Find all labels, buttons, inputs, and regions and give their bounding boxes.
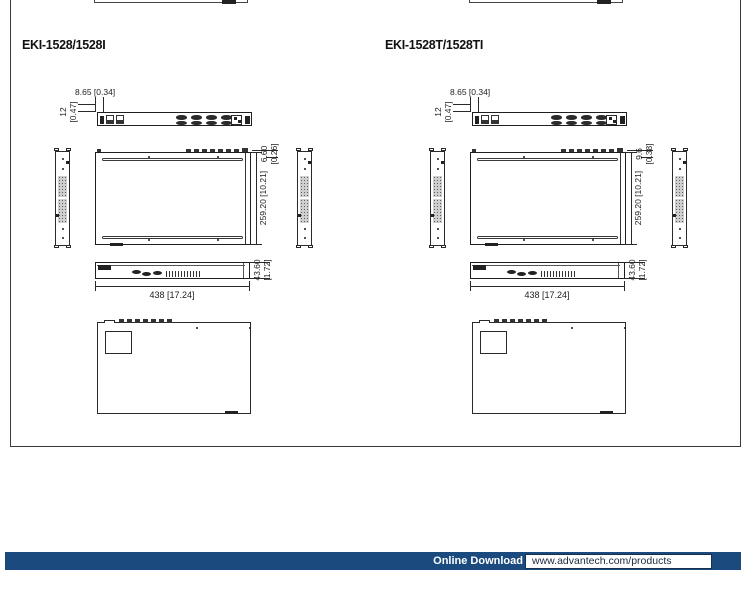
vent-grille [58, 199, 67, 223]
edge-tab [234, 149, 239, 152]
dim-line-depth [256, 152, 257, 245]
dim-lip-label: 6.60[0.26] [260, 140, 280, 168]
serial-port [176, 121, 187, 126]
label-area [480, 331, 507, 354]
edge-tab [534, 319, 539, 323]
bottom-edge-connector [485, 243, 498, 246]
vent-slot [102, 158, 243, 161]
vent-slot [477, 236, 618, 239]
vent-grille [675, 199, 684, 223]
rj45-port [491, 115, 499, 124]
edge-tab [226, 149, 231, 152]
edge-tab [585, 149, 590, 152]
screw-hole [62, 168, 64, 170]
connector-shape [132, 270, 141, 274]
rj45-port [481, 115, 489, 124]
screw-hole [679, 237, 681, 239]
edge-tab [494, 319, 499, 323]
bezel-line [97, 265, 245, 266]
connector-shape [153, 271, 162, 275]
serial-port [176, 115, 187, 120]
bottom-view [97, 322, 251, 414]
mounting-foot [308, 148, 313, 151]
side-tab [441, 161, 444, 164]
edge-tab [617, 148, 623, 152]
screw-hole [523, 156, 525, 158]
terminal-pin [234, 117, 237, 120]
side-tab [673, 214, 676, 217]
edge-tab [167, 319, 172, 323]
model-title: EKI-1528/1528I [22, 38, 105, 52]
dim-height-label: 43.60[1.72] [253, 255, 273, 285]
screw-hole [217, 239, 219, 241]
bottom-edge-connector [225, 411, 238, 414]
screw-hole [304, 237, 306, 239]
edge-tab [518, 319, 523, 323]
edge-tab [127, 319, 132, 323]
brand-logo-block [98, 265, 111, 270]
mounting-foot [429, 148, 434, 151]
terminal-pin [609, 117, 612, 120]
edge-tab [601, 149, 606, 152]
download-url: www.advantech.com/products [526, 555, 711, 568]
edge-tab [242, 148, 248, 152]
label-area [105, 331, 132, 354]
dimension-panel: EKI-1528/1528I 8.65 [0.34] 12[0.47] [22, 0, 362, 445]
serial-port [206, 121, 217, 126]
side-tab [683, 161, 686, 164]
terminal-pin [613, 120, 616, 123]
dim-offset-label: 8.65 [0.34] [450, 87, 490, 97]
screw-hole [679, 168, 681, 170]
top-view [470, 152, 626, 245]
screw-hole [148, 239, 150, 241]
edge-tab [577, 149, 582, 152]
terminal-block [231, 115, 242, 125]
vent-grille [58, 176, 67, 197]
dim-offset-label: 8.65 [0.34] [75, 87, 115, 97]
edge-tab [143, 319, 148, 323]
vent-slot [102, 236, 243, 239]
edge-notch [479, 320, 490, 323]
screw-hole [196, 327, 198, 329]
screw-hole [304, 158, 306, 160]
dim-width-label: 438 [17.24] [117, 290, 227, 300]
screw-hole [437, 158, 439, 160]
bottom-edge-connector [600, 411, 613, 414]
terminal-block [606, 115, 617, 125]
screw-hole [304, 168, 306, 170]
rj45-port [106, 115, 114, 124]
rear-edge-line [245, 153, 246, 244]
screw-hole [62, 237, 64, 239]
serial-port [581, 121, 592, 126]
edge-tab [502, 319, 507, 323]
dim-tick [78, 104, 96, 105]
dim-line-width [470, 286, 625, 287]
terminal-pin [238, 120, 241, 123]
screw-hole [624, 327, 626, 329]
edge-tab [526, 319, 531, 323]
side-tab [308, 161, 311, 164]
edge-tab [159, 319, 164, 323]
serial-port [551, 121, 562, 126]
serial-port [206, 115, 217, 120]
edge-notch [104, 320, 115, 323]
mounting-foot [54, 148, 59, 151]
rear-edge-line [620, 153, 621, 244]
edge-tab [194, 149, 199, 152]
edge-tab [569, 149, 574, 152]
vent-grille [300, 176, 309, 197]
mounting-foot [296, 245, 301, 248]
dim-line-width [95, 286, 250, 287]
edge-tab [593, 149, 598, 152]
dim-height-label: 43.60[1.72] [628, 255, 648, 285]
led-array [166, 271, 200, 277]
connector-shape [507, 270, 516, 274]
vent-grille [433, 199, 442, 223]
edge-tab [510, 319, 515, 323]
serial-port [566, 121, 577, 126]
side-view-right [297, 151, 312, 246]
mounting-foot [441, 148, 446, 151]
dim-width-label: 438 [17.24] [492, 290, 602, 300]
edge-tab [561, 149, 566, 152]
screw-hole [62, 158, 64, 160]
screw-hole [304, 228, 306, 230]
edge-tab [202, 149, 207, 152]
edge-tab [151, 319, 156, 323]
mounting-foot [441, 245, 446, 248]
cropped-drawing-connector [597, 0, 611, 4]
dim-tick [453, 104, 471, 105]
mounting-foot [54, 245, 59, 248]
bottom-view [472, 322, 626, 414]
edge-tab [135, 319, 140, 323]
screw-hole [217, 156, 219, 158]
screw-hole [249, 327, 251, 329]
dim-depth-label: 259.20 [10.21] [633, 158, 645, 238]
screw-hole [523, 239, 525, 241]
edge-tab [97, 149, 101, 152]
screw-hole [437, 168, 439, 170]
serial-port [551, 115, 562, 120]
serial-port [566, 115, 577, 120]
screw-hole [679, 158, 681, 160]
screw-hole [62, 228, 64, 230]
bezel-line [618, 263, 619, 278]
brand-logo-block [473, 265, 486, 270]
power-connector [100, 116, 104, 124]
serial-port [581, 115, 592, 120]
connector-shape [517, 272, 526, 276]
screw-hole [437, 228, 439, 230]
side-view-left [55, 151, 70, 246]
serial-port [191, 121, 202, 126]
led-array [541, 271, 575, 277]
edge-tab [186, 149, 191, 152]
screw-hole [592, 156, 594, 158]
dim-extension-line [478, 97, 479, 112]
front-view [95, 262, 250, 279]
serial-port [191, 115, 202, 120]
front-view [470, 262, 625, 279]
dim-tick [453, 111, 471, 112]
mounting-foot [683, 148, 688, 151]
connector-shape [142, 272, 151, 276]
dim-line-depth [631, 152, 632, 245]
datasheet-page: EKI-1528/1528I 8.65 [0.34] 12[0.47] [0, 0, 750, 591]
front-panel-view [97, 112, 252, 126]
screw-hole [437, 237, 439, 239]
side-tab [298, 214, 301, 217]
rj45-port [116, 115, 124, 124]
power-connector [475, 116, 479, 124]
mounting-foot [671, 245, 676, 248]
mounting-foot [66, 148, 71, 151]
dimension-panel: EKI-1528T/1528TI 8.65 [0.34] 12[0.47] [397, 0, 737, 445]
screw-hole [571, 327, 573, 329]
dim-tick [78, 111, 96, 112]
mounting-foot [683, 245, 688, 248]
switch-block [620, 116, 625, 124]
dim-panel-height-label: 12[0.47] [59, 95, 79, 129]
front-panel-view [472, 112, 627, 126]
side-tab [431, 214, 434, 217]
side-tab [56, 214, 59, 217]
mounting-foot [296, 148, 301, 151]
vent-grille [675, 176, 684, 197]
dim-depth-label: 259.20 [10.21] [258, 158, 270, 238]
connector-shape [528, 271, 537, 275]
side-view-right [672, 151, 687, 246]
vent-slot [477, 158, 618, 161]
model-title: EKI-1528T/1528TI [385, 38, 483, 52]
edge-tab [609, 149, 614, 152]
dim-lip-label: 9.6[0.38] [635, 140, 655, 168]
edge-tab [472, 149, 476, 152]
edge-tab [210, 149, 215, 152]
switch-block [245, 116, 250, 124]
footer-bar: Online Download www.advantech.com/produc… [5, 552, 741, 570]
dim-extension-line [103, 97, 104, 112]
mounting-foot [671, 148, 676, 151]
edge-tab [542, 319, 547, 323]
dim-panel-height-label: 12[0.47] [434, 95, 454, 129]
side-tab [66, 161, 69, 164]
online-download-label: Online Download [385, 552, 523, 570]
mounting-foot [429, 245, 434, 248]
vent-grille [433, 176, 442, 197]
vent-grille [300, 199, 309, 223]
download-url-box: www.advantech.com/products [525, 554, 712, 569]
bezel-line [472, 265, 620, 266]
edge-tab [119, 319, 124, 323]
dim-tick [625, 244, 637, 245]
edge-tab [218, 149, 223, 152]
mounting-foot [66, 245, 71, 248]
mounting-foot [308, 245, 313, 248]
dim-tick [250, 244, 262, 245]
cropped-drawing-connector [222, 0, 236, 4]
side-view-left [430, 151, 445, 246]
screw-hole [679, 228, 681, 230]
top-view [95, 152, 251, 245]
screw-hole [592, 239, 594, 241]
bottom-edge-connector [110, 243, 123, 246]
screw-hole [148, 156, 150, 158]
bezel-line [243, 263, 244, 278]
